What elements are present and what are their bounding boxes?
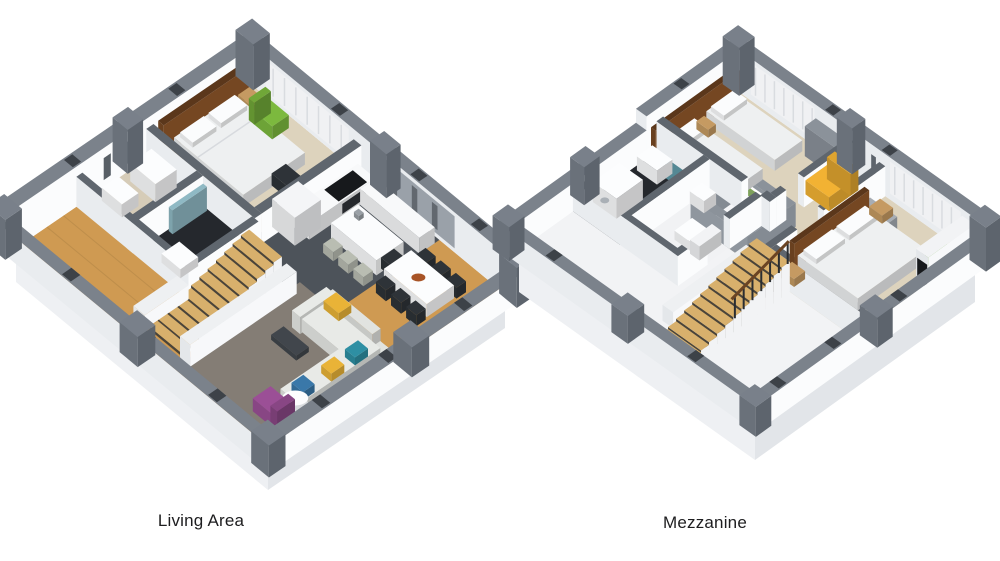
floor-plans-render <box>0 0 1000 561</box>
interior-wall <box>798 173 804 207</box>
living-area-label: Living Area <box>126 511 276 531</box>
floor-plan-living-area <box>0 19 533 491</box>
washer-door <box>600 197 609 203</box>
interior-wall <box>724 215 730 249</box>
fruit-bowl <box>411 273 425 281</box>
mezzanine-label: Mezzanine <box>630 513 780 533</box>
interior-wall <box>672 252 678 286</box>
floor-plan-mezzanine <box>493 25 1000 460</box>
floor-plans-page: Living Area Mezzanine <box>0 0 1000 561</box>
stair-step <box>782 262 790 298</box>
shower-glass <box>169 207 173 234</box>
interior-wall <box>770 197 777 232</box>
green-armchair <box>249 98 255 125</box>
stair-step <box>774 270 782 303</box>
corner-post <box>852 119 865 174</box>
